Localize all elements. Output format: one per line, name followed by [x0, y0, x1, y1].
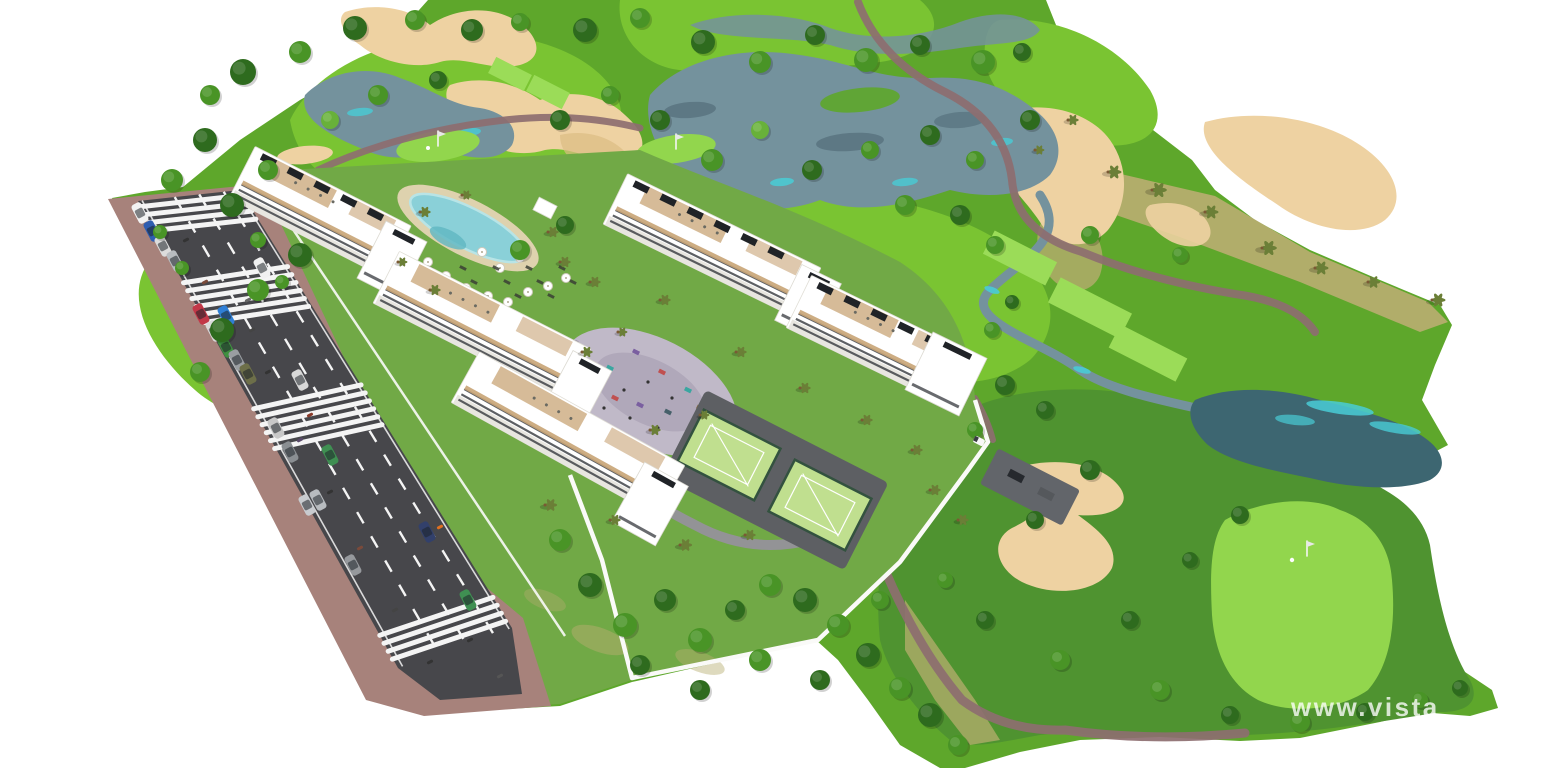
golf-resort-render: www.vistao	[0, 0, 1560, 768]
aerial-render-image: www.vistao	[0, 0, 1560, 768]
watermark: www.vistao	[1290, 692, 1458, 722]
